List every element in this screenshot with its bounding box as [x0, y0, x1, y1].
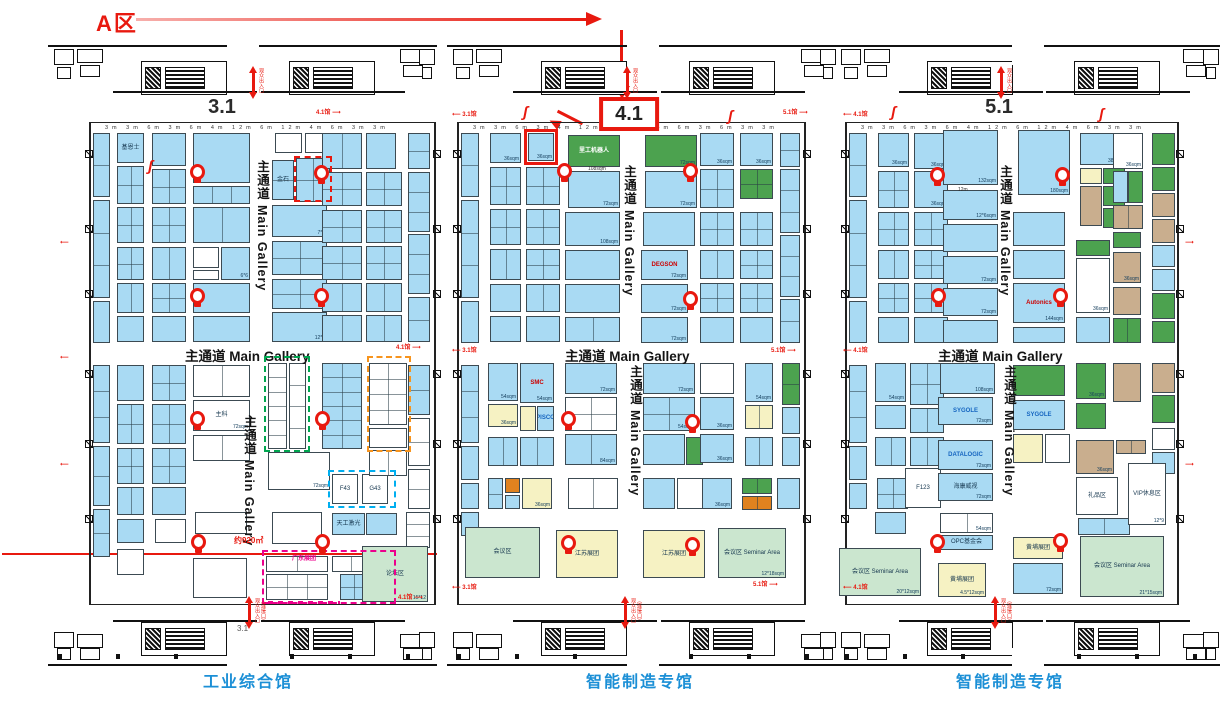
- location-pin-icon: [314, 288, 329, 308]
- door-icon: [803, 225, 811, 233]
- band-room: [1203, 632, 1219, 648]
- booth-divider: [367, 189, 401, 190]
- booth-divider: [537, 438, 538, 465]
- booth: 54sqm: [875, 363, 906, 402]
- booth-divider: [342, 134, 343, 168]
- booth-divider: [759, 438, 760, 465]
- nav-arrow-label: ⟵: [60, 240, 69, 247]
- band-room: [479, 65, 499, 77]
- booth-divider: [94, 233, 109, 234]
- booth: [780, 235, 800, 297]
- door-icon: [841, 515, 849, 523]
- booth: [780, 169, 800, 233]
- booth: [565, 284, 620, 313]
- door-icon: [841, 225, 849, 233]
- hall-wall: [804, 122, 806, 605]
- zone-arrow-head-icon: [586, 12, 602, 26]
- highlight-box: [262, 550, 396, 604]
- door-icon: [841, 440, 849, 448]
- door-icon: [85, 440, 93, 448]
- main-gallery-vertical-label: 主通道 Main Gallery: [253, 160, 272, 348]
- band-seg: [661, 91, 805, 93]
- entrance-label: 观众出入口: [1006, 68, 1011, 93]
- booth: [193, 558, 247, 598]
- booth: [1152, 269, 1175, 291]
- booth-divider: [118, 424, 143, 425]
- booth-divider: [409, 489, 429, 490]
- booth-divider: [342, 316, 343, 341]
- band-block: [545, 628, 561, 650]
- door-icon: [1176, 440, 1184, 448]
- booth-divider: [323, 406, 361, 407]
- escalator-icon: ʃ: [728, 110, 733, 124]
- booth-divider: [367, 263, 401, 264]
- booth: [1113, 287, 1141, 315]
- nav-arrow-label: 4.1馆 ⟶: [396, 345, 421, 352]
- main-gallery-horizontal-label: 主通道 Main Gallery: [938, 345, 1098, 365]
- door-icon: [453, 515, 461, 523]
- booth: [366, 513, 397, 535]
- door-icon: [433, 515, 441, 523]
- band-block: [145, 67, 161, 89]
- booth-divider: [323, 263, 361, 264]
- door-icon: [1176, 370, 1184, 378]
- location-pin-icon: [315, 411, 330, 431]
- booth: OPC基金会: [940, 535, 993, 550]
- band-block: [693, 67, 709, 89]
- booth-divider: [131, 488, 132, 514]
- zone-a-label: A区: [96, 6, 138, 38]
- entrance-label: 观众出入口: [258, 68, 263, 93]
- booth-divider: [543, 285, 544, 311]
- hall-wall: [847, 122, 1177, 123]
- band-room: [80, 65, 100, 77]
- entrance-label: 观众出入口: [1000, 598, 1005, 623]
- booth: [849, 483, 867, 509]
- door-icon: [453, 440, 461, 448]
- booth-divider: [118, 225, 143, 226]
- booth: 6*6: [221, 247, 250, 280]
- booth: [93, 200, 110, 298]
- booth-divider: [409, 390, 429, 391]
- booth-divider: [153, 383, 185, 384]
- booth-divider: [781, 321, 799, 322]
- booth-divider: [701, 229, 733, 230]
- hall-title: 5.1: [985, 96, 1013, 119]
- nav-arrow-label: 5.1馆 ⟶: [771, 348, 796, 355]
- band-gap: [627, 648, 659, 668]
- booth: [406, 512, 430, 548]
- nav-arrow-label: ⟶: [1185, 240, 1194, 247]
- booth: 108sqm: [565, 212, 620, 246]
- main-gallery-vertical-label: 主通道 Main Gallery: [1000, 365, 1019, 555]
- nav-arrow-label: 5.1馆 ⟶: [783, 110, 808, 117]
- booth: [1152, 133, 1175, 165]
- booth-divider: [503, 438, 504, 465]
- booth-divider: [527, 227, 559, 228]
- booth: 36sqm: [1076, 363, 1106, 399]
- booth: [849, 365, 867, 443]
- band-room: [476, 634, 502, 648]
- annotation-note: 约920㎡: [234, 535, 263, 546]
- entrance-arrow: [624, 601, 627, 623]
- booth: [677, 478, 703, 509]
- booth-divider: [462, 265, 478, 266]
- nav-arrow-label: ⟵: [60, 355, 69, 362]
- location-pin-icon: [1053, 533, 1068, 553]
- door-icon: [1176, 150, 1184, 158]
- location-pin-icon: [315, 534, 330, 554]
- band-stairs: [565, 67, 605, 89]
- booth-divider: [701, 298, 733, 299]
- door-icon: [1176, 225, 1184, 233]
- booth: [490, 284, 521, 312]
- booth: [152, 487, 186, 515]
- entrance-arrow: [248, 601, 251, 623]
- booth: [849, 446, 867, 480]
- booth-divider: [94, 391, 109, 392]
- hall-name: 智能制造专馆: [586, 668, 694, 692]
- booth: 36sqm: [702, 478, 732, 509]
- location-pin-icon: [685, 537, 700, 557]
- band-room: [823, 67, 833, 79]
- booth: SMC54sqm: [520, 363, 554, 403]
- booth: 72sqm: [641, 317, 688, 343]
- booth: [782, 407, 800, 434]
- main-gallery-horizontal-label: 主通道 Main Gallery: [565, 345, 725, 365]
- booth: [1152, 293, 1175, 319]
- booth: 36sqm: [878, 133, 909, 167]
- entrance-arrow: [994, 601, 997, 623]
- booth-divider: [894, 251, 895, 278]
- entrance-label: （连接口）: [636, 598, 641, 623]
- booth-divider: [407, 524, 429, 525]
- booth: DEGSON72sqm: [641, 250, 688, 280]
- booth: [700, 317, 734, 343]
- booth: [520, 406, 536, 431]
- band-stairs: [1098, 628, 1138, 650]
- band-room: [403, 65, 423, 77]
- booth: [1013, 365, 1065, 396]
- location-pin-icon: [683, 291, 698, 311]
- highlight-box: [328, 470, 396, 508]
- band-room: [844, 67, 858, 79]
- door-icon: [803, 515, 811, 523]
- band-room: [77, 634, 103, 648]
- booth: [1152, 245, 1175, 267]
- booth-divider: [741, 265, 772, 266]
- booth-divider: [94, 165, 109, 166]
- band-room: [422, 67, 432, 79]
- entrance-arrow-head-icon: [997, 92, 1005, 99]
- nav-arrow-label: 4.1馆 ⟶: [316, 110, 341, 117]
- band-stairs: [713, 628, 753, 650]
- band-gap: [627, 45, 659, 65]
- main-gallery-vertical-label: 主通道 Main Gallery: [620, 165, 639, 345]
- band-room: [841, 49, 861, 65]
- booth: 12*6sqm: [943, 190, 998, 220]
- band-room: [419, 49, 435, 65]
- booth: DATALOGIC72sqm: [938, 440, 993, 470]
- booth: PISCO: [537, 406, 554, 431]
- booth: F123: [905, 468, 941, 508]
- entrance-arrow: [1000, 71, 1003, 93]
- nav-arrow-label: 5.1馆 ⟶: [753, 582, 778, 589]
- booth-divider: [409, 320, 429, 321]
- door-icon: [85, 150, 93, 158]
- booth-divider: [409, 151, 429, 152]
- door-icon: [85, 370, 93, 378]
- booth-divider: [781, 212, 799, 213]
- booth-divider: [222, 208, 223, 242]
- band-seg: [899, 91, 1043, 93]
- booth-divider: [118, 185, 143, 186]
- band-seg: [261, 91, 405, 93]
- door-icon: [433, 150, 441, 158]
- band-stairs: [951, 628, 991, 650]
- booth: [117, 316, 144, 342]
- booth-divider: [231, 187, 232, 203]
- door-icon: [85, 515, 93, 523]
- booth: 54sqm: [745, 363, 773, 402]
- band-room: [1186, 65, 1206, 77]
- booth: 72sqm: [1013, 563, 1063, 594]
- band-seg: [1046, 91, 1190, 93]
- booth-divider: [153, 466, 185, 467]
- booth: [1013, 250, 1065, 279]
- booth-divider: [757, 497, 758, 509]
- booth: 会议区 Seminar Area12*18sqm: [718, 528, 786, 578]
- band-gap: [227, 648, 259, 668]
- booth-divider: [717, 251, 718, 278]
- booth: [740, 317, 773, 343]
- highlight-box: [524, 129, 558, 165]
- band-room: [820, 49, 836, 65]
- booth-divider: [222, 366, 223, 396]
- entrance-arrow-head-icon: [249, 92, 257, 99]
- band-block: [931, 67, 947, 89]
- entrance-arrow-head-icon: [623, 66, 631, 73]
- booth: [943, 320, 998, 343]
- band-room: [57, 67, 71, 79]
- booth: [643, 434, 685, 465]
- booth-divider: [1128, 206, 1129, 228]
- booth-divider: [409, 192, 429, 193]
- location-pin-icon: [190, 288, 205, 308]
- door-icon: [1176, 290, 1184, 298]
- location-pin-icon: [1055, 167, 1070, 187]
- booth-divider: [153, 187, 185, 188]
- booth: 72sqm: [641, 284, 688, 313]
- band-room: [453, 49, 473, 65]
- escalator-icon: ʃ: [1099, 108, 1104, 122]
- band-room: [54, 49, 74, 65]
- location-pin-icon: [557, 163, 572, 183]
- booth-divider: [850, 391, 866, 392]
- door-icon: [453, 370, 461, 378]
- entrance-arrow: [626, 71, 629, 93]
- band-stairs: [313, 67, 353, 89]
- nav-arrow-label: ⟵ 4.1馆: [843, 112, 868, 119]
- location-pin-icon: [685, 414, 700, 434]
- booth-divider: [407, 536, 429, 537]
- booth: [1152, 219, 1175, 243]
- band-room: [77, 49, 103, 63]
- hall-name: 工业综合馆: [203, 668, 293, 692]
- nav-arrow-label: 4.1馆 ⟶: [398, 595, 423, 602]
- booth-divider: [741, 229, 772, 230]
- booth-divider: [527, 186, 559, 187]
- band-block: [1078, 67, 1094, 89]
- booth: 黄埔展团4.5*12sqm: [938, 563, 986, 597]
- booth-divider: [850, 233, 866, 234]
- booth: 36sqm: [700, 397, 734, 430]
- booth: 72sqm: [943, 288, 998, 316]
- location-pin-icon: [190, 411, 205, 431]
- band-room: [804, 65, 824, 77]
- booth-divider: [323, 227, 361, 228]
- booth: [849, 301, 867, 343]
- entrance-arrow-head-icon: [623, 92, 631, 99]
- hall-name: 智能制造专馆: [956, 668, 1064, 692]
- entrance-arrow-head-icon: [991, 622, 999, 629]
- band-stairs: [713, 67, 753, 89]
- booth-divider: [489, 494, 502, 495]
- booth-divider: [462, 233, 478, 234]
- band-block: [693, 628, 709, 650]
- booth-divider: [342, 284, 343, 311]
- location-pin-icon: [561, 411, 576, 431]
- booth: SYGOLE: [1013, 400, 1065, 430]
- escalator-icon: ʃ: [891, 106, 896, 120]
- booth: VIP休息区12*9: [1128, 463, 1166, 525]
- nav-arrow-label: ⟵ 3.1馆: [452, 585, 477, 592]
- entrance-arrow-head-icon: [245, 622, 253, 629]
- booth: [1080, 168, 1102, 184]
- booth-divider: [781, 190, 799, 191]
- booth-divider: [759, 406, 760, 428]
- door-icon: [433, 290, 441, 298]
- door-icon: [433, 370, 441, 378]
- booth: [1152, 167, 1175, 191]
- booth: 54sqm: [488, 363, 518, 401]
- door-icon: [841, 150, 849, 158]
- booth: [1076, 403, 1106, 429]
- booth-divider: [593, 318, 594, 341]
- nav-arrow-label: ⟵ 4.1馆: [843, 585, 868, 592]
- door-icon: [841, 290, 849, 298]
- booth: [643, 478, 675, 509]
- location-pin-icon: [930, 534, 945, 554]
- booth-divider: [701, 189, 733, 190]
- booth: 7*8: [272, 205, 327, 237]
- dimension-labels: 3m 3m 6m 3m 6m 4m 12m 6m 12m 4m 6m 3m 3m: [861, 125, 1167, 131]
- booth-divider: [94, 417, 109, 418]
- booth: [1113, 171, 1128, 203]
- band-gap: [1012, 45, 1044, 65]
- booth: [93, 301, 110, 343]
- door-icon: [1176, 515, 1184, 523]
- location-pin-icon: [561, 535, 576, 555]
- band-stairs: [165, 67, 205, 89]
- entrance-label: （连接口）: [260, 598, 265, 623]
- booth: [1113, 363, 1141, 402]
- hall-wall: [457, 122, 459, 605]
- booth-divider: [409, 212, 429, 213]
- booth-divider: [169, 248, 170, 279]
- band-seg: [113, 620, 257, 622]
- booth-divider: [153, 424, 185, 425]
- band-block: [1078, 628, 1094, 650]
- hall-wall: [845, 122, 847, 605]
- booth-divider: [741, 298, 772, 299]
- booth: [193, 270, 219, 280]
- band-seg: [113, 91, 257, 93]
- booth: [1045, 434, 1070, 463]
- booth: [461, 446, 479, 480]
- location-pin-icon: [931, 288, 946, 308]
- booth-divider: [927, 409, 928, 432]
- booth-divider: [409, 442, 429, 443]
- booth-divider: [850, 265, 866, 266]
- location-pin-icon: [190, 164, 205, 184]
- booth-divider: [1104, 519, 1105, 534]
- band-room: [476, 49, 502, 63]
- booth: [193, 186, 250, 204]
- band-room: [419, 632, 435, 648]
- booth-divider: [212, 187, 213, 203]
- booth-divider: [781, 276, 799, 277]
- booth: [408, 172, 430, 232]
- door-icon: [453, 150, 461, 158]
- booth: 天工激光: [332, 513, 365, 535]
- entrance-arrow-head-icon: [991, 596, 999, 603]
- door-icon: [841, 370, 849, 378]
- location-pin-icon: [191, 534, 206, 554]
- booth: [849, 200, 867, 298]
- booth: [408, 234, 430, 294]
- entrance-arrow-head-icon: [621, 622, 629, 629]
- booth: 36sqm: [488, 404, 518, 427]
- booth: [1013, 212, 1065, 246]
- booth: [461, 301, 479, 343]
- booth-divider: [879, 190, 908, 191]
- booth: [93, 365, 110, 443]
- booth: [782, 437, 800, 466]
- booth-divider: [757, 479, 758, 493]
- booth-divider: [879, 298, 908, 299]
- band-stairs: [565, 628, 605, 650]
- booth-divider: [967, 514, 968, 532]
- annotation-note: 广东展团: [292, 553, 316, 562]
- booth: 72sqm: [565, 363, 617, 394]
- booth: [1152, 428, 1175, 450]
- booth-divider: [131, 284, 132, 312]
- booth: 里工机器人: [568, 135, 620, 167]
- band-room: [54, 632, 74, 648]
- booth: [943, 224, 998, 252]
- booth: 72sqm: [643, 363, 695, 394]
- band-room: [456, 67, 470, 79]
- entrance-label: （连接口）: [1006, 598, 1011, 623]
- highlight-box: [367, 356, 411, 452]
- booth: 36sqm: [1113, 133, 1143, 169]
- booth: [155, 519, 186, 543]
- door-icon: [85, 225, 93, 233]
- booth-divider: [781, 150, 799, 151]
- booth-divider: [94, 265, 109, 266]
- escalator-icon: ʃ: [523, 106, 528, 120]
